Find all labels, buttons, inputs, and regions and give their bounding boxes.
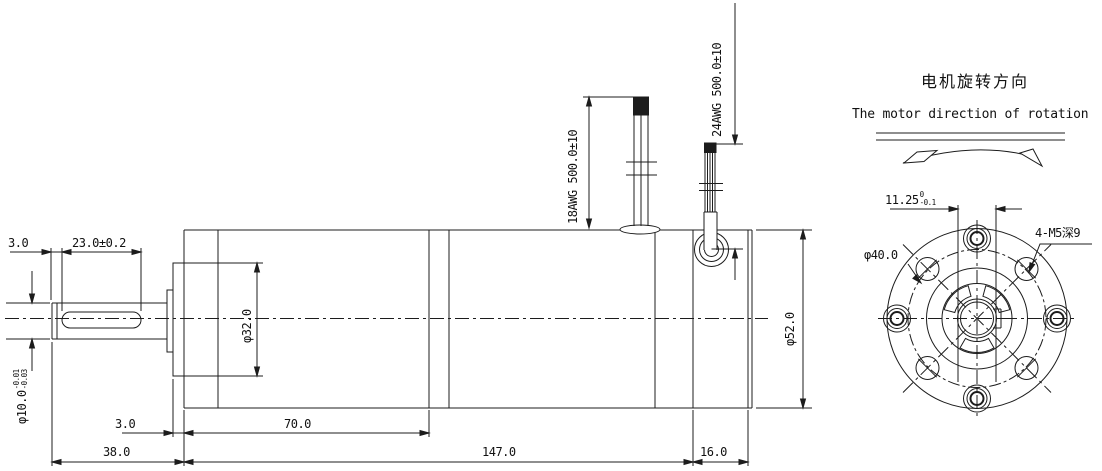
technical-drawing-page: 3.0 23.0±0.2 φ10.0 -0.01 -0.03 3.0 70.0 …	[0, 0, 1102, 471]
dim-label-body-diameter: φ52.0	[784, 312, 796, 346]
dim-label-body-length: 147.0	[482, 446, 516, 458]
dim-label-rear-length: 16.0	[700, 446, 727, 458]
technical-drawing-canvas	[0, 0, 1102, 471]
shaft-dia-tol-lower: -0.03	[21, 369, 29, 389]
pilot-boss	[173, 263, 184, 376]
wire-bundle-24awg	[699, 143, 723, 212]
wire-grommet-18awg	[620, 225, 660, 234]
dim-label-tip-length: 3.0	[8, 237, 28, 249]
dim-label-wire-18awg: 18AWG 500.0±10	[567, 130, 579, 224]
dim-label-pilot-diameter: φ32.0	[241, 309, 253, 343]
rotation-arrow-ccw	[904, 151, 937, 164]
dim-pilot-dia	[255, 263, 260, 376]
dim-shaft-dia	[6, 271, 50, 371]
key-width-tol-lower: -0.1	[920, 199, 936, 207]
thread-leader	[1029, 244, 1092, 272]
wire-bundle-18awg	[626, 97, 657, 226]
rotation-title-chinese: 电机旋转方向	[921, 74, 1029, 90]
dim-label-wire-24awg: 24AWG 500.0±10	[711, 43, 723, 137]
label-thread-spec: 4-M5深9	[1035, 227, 1080, 239]
dim-label-gearbox-length: 70.0	[284, 418, 311, 430]
dim-label-flat-length: 23.0±0.2	[72, 237, 126, 249]
rotation-note-graphic	[876, 133, 1065, 166]
motor-shaft	[52, 303, 167, 339]
dim-bottom-rows	[52, 342, 748, 466]
dim-shaft-top	[10, 248, 141, 311]
key-width-value: 11.25	[885, 194, 919, 206]
rotation-title-english: The motor direction of rotation	[852, 108, 1088, 121]
dim-label-key-width: 11.25 0 -0.1	[885, 192, 936, 209]
dim-label-shaft-diameter: φ10.0 -0.01 -0.03	[14, 369, 31, 424]
shaft-collar	[167, 290, 173, 352]
shaft-flat-keyway	[62, 312, 141, 328]
dim-label-boss-length: 3.0	[115, 418, 135, 430]
rotation-arrow-cw	[1020, 149, 1042, 166]
bolt-circle-leader	[908, 264, 921, 283]
dim-label-shaft-length: 38.0	[103, 446, 130, 458]
side-view	[5, 3, 812, 466]
shaft-dia-value: φ10.0	[16, 390, 28, 424]
label-bolt-circle-diameter: φ40.0	[864, 249, 898, 261]
wire-grommet-24awg	[695, 212, 729, 267]
